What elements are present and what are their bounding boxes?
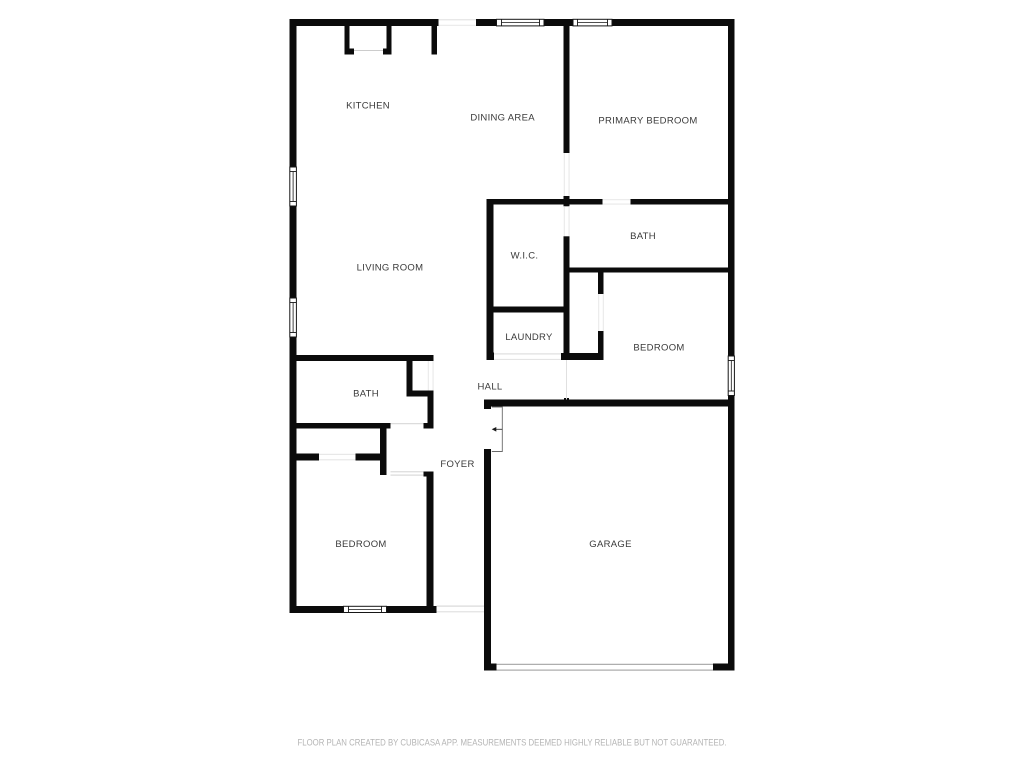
svg-text:BATH: BATH [353,389,379,400]
svg-text:BATH: BATH [630,231,656,242]
svg-text:KITCHEN: KITCHEN [346,101,390,112]
svg-text:LAUNDRY: LAUNDRY [505,332,553,343]
svg-text:BEDROOM: BEDROOM [633,343,684,354]
svg-text:HALL: HALL [478,382,503,393]
svg-text:DINING AREA: DINING AREA [470,112,535,123]
svg-text:W.I.C.: W.I.C. [511,251,539,262]
svg-text:PRIMARY BEDROOM: PRIMARY BEDROOM [598,116,697,127]
svg-text:BEDROOM: BEDROOM [335,539,386,550]
svg-text:FLOOR PLAN CREATED BY CUBICASA: FLOOR PLAN CREATED BY CUBICASA APP. MEAS… [298,737,727,747]
svg-text:GARAGE: GARAGE [589,539,631,550]
svg-text:LIVING ROOM: LIVING ROOM [357,263,424,274]
svg-text:FOYER: FOYER [440,459,474,470]
